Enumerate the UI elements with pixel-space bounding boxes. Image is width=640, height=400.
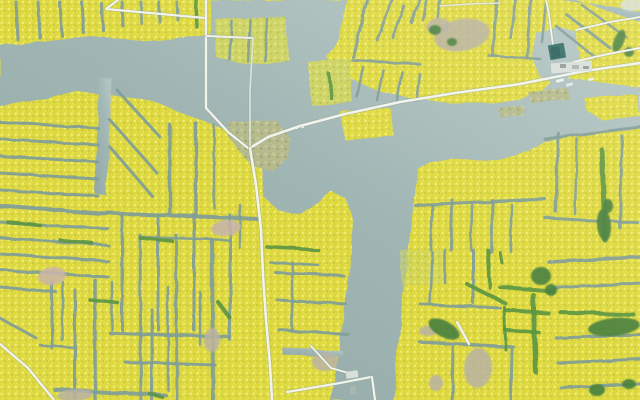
- photo-grain-overlay: [0, 0, 640, 400]
- aerial-photo: [0, 0, 640, 400]
- aerial-photo-canvas: [0, 0, 640, 400]
